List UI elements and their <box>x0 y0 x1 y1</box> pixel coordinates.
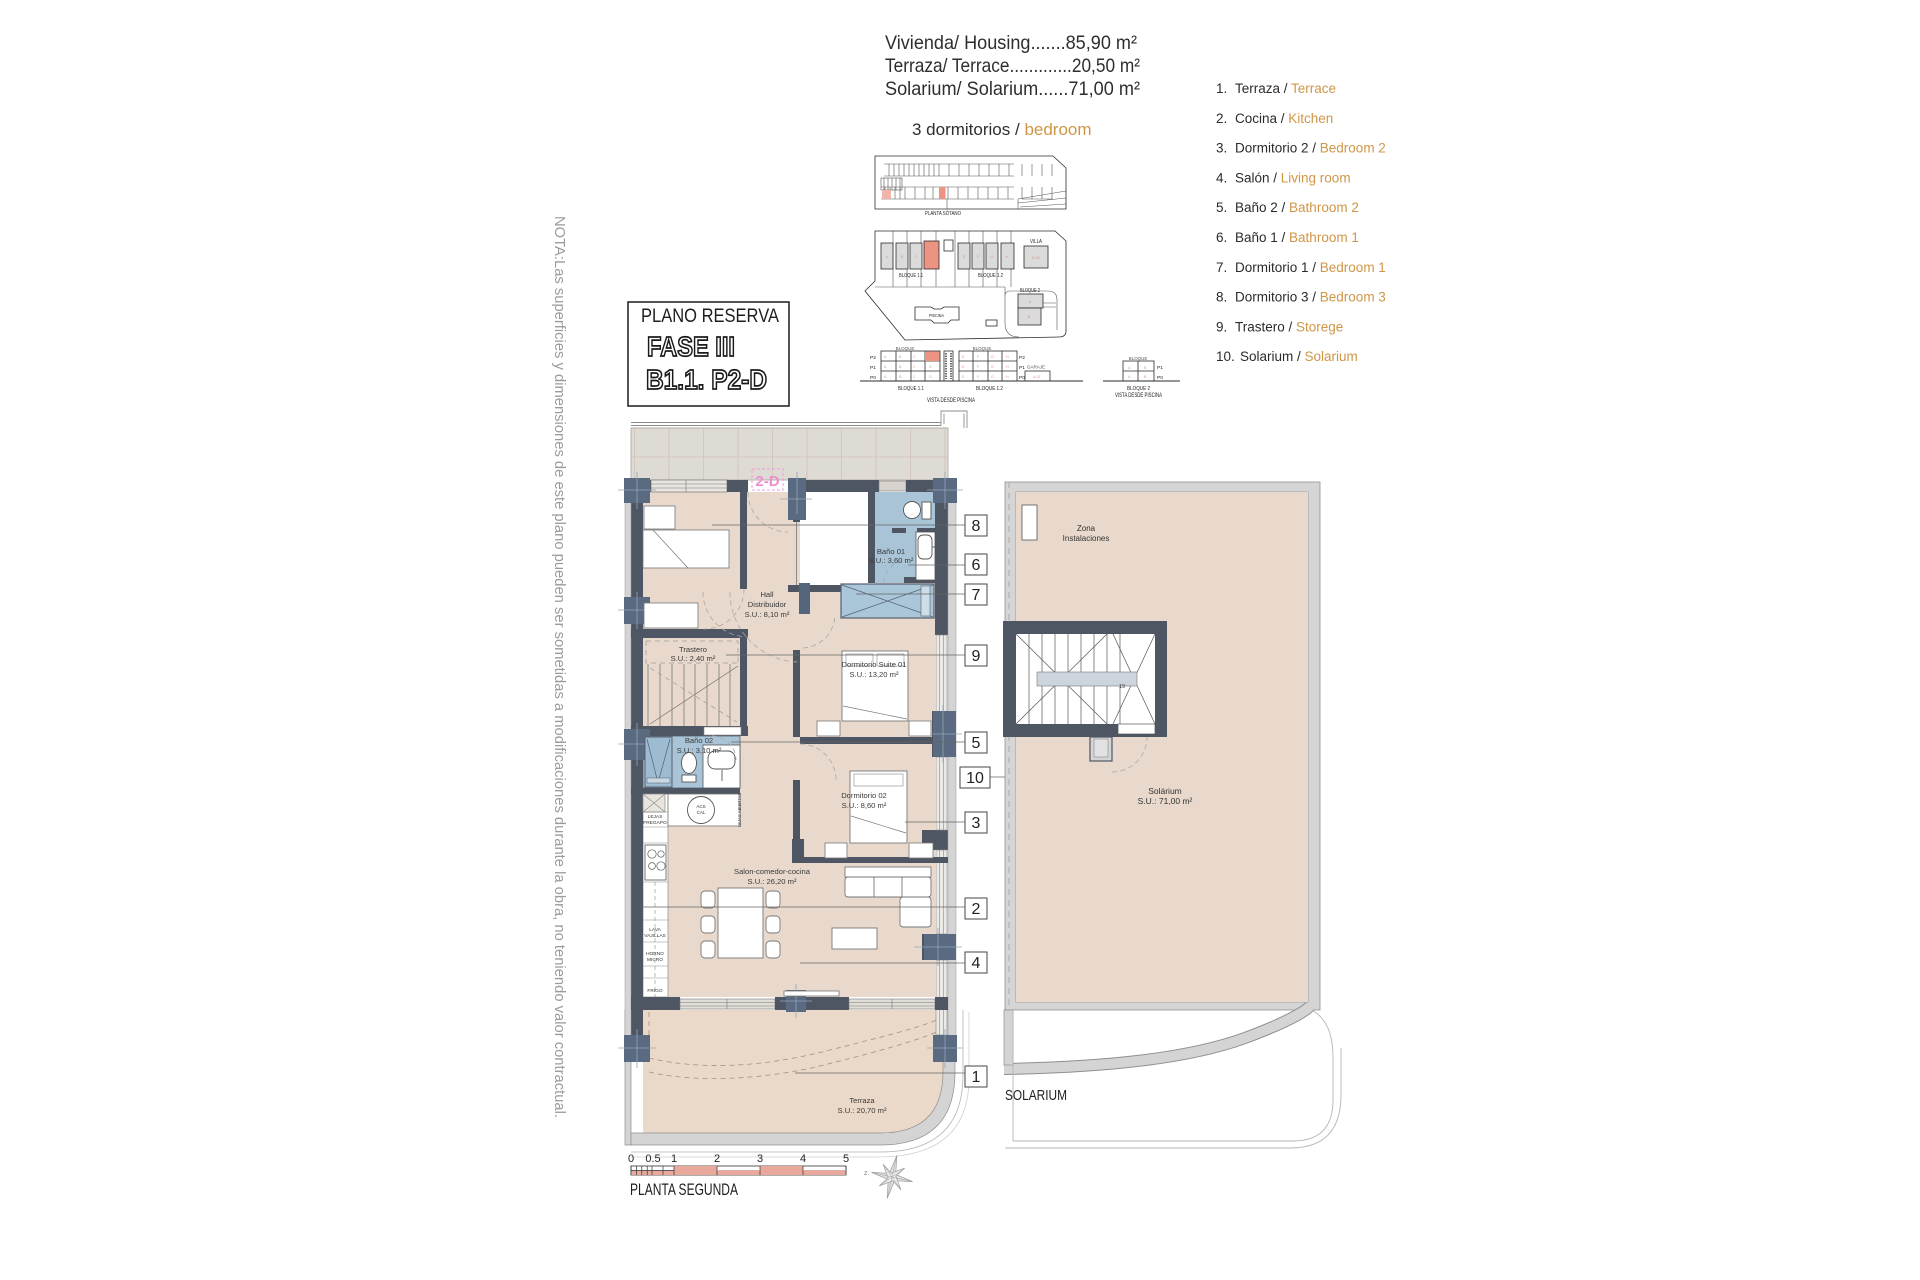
svg-text:C: C <box>913 355 916 359</box>
svg-text:6.: 6. <box>1216 230 1227 245</box>
svg-text:4.: 4. <box>1216 170 1227 185</box>
svg-text:Salon-comedor-cocina: Salon-comedor-cocina <box>734 867 811 876</box>
svg-text:G: G <box>991 355 994 359</box>
svg-text:Solárium: Solárium <box>1148 786 1182 796</box>
svg-text:PISCINA: PISCINA <box>929 313 944 318</box>
svg-text:Solarium/ Solarium......71,00: Solarium/ Solarium......71,00 m² <box>885 78 1140 100</box>
svg-text:2.: 2. <box>1216 111 1227 126</box>
svg-text:VILLA: VILLA <box>1030 239 1043 245</box>
svg-text:H: H <box>1006 355 1009 359</box>
svg-text:G: G <box>990 254 993 259</box>
svg-text:H: H <box>1006 375 1009 379</box>
svg-text:E: E <box>963 254 966 259</box>
svg-text:P2: P2 <box>1019 355 1025 361</box>
svg-text:3 dormitorios / bedroom: 3 dormitorios / bedroom <box>912 120 1092 139</box>
svg-text:BLOQUE 1.1: BLOQUE 1.1 <box>899 273 923 279</box>
svg-text:Dormitorio Suite 01: Dormitorio Suite 01 <box>842 660 907 669</box>
svg-text:VISTA DESDE PISCINA: VISTA DESDE PISCINA <box>927 398 975 404</box>
svg-text:A-01: A-01 <box>1033 375 1041 379</box>
svg-text:Cocina / Kitchen: Cocina / Kitchen <box>1235 111 1333 126</box>
svg-text:1: 1 <box>671 1153 677 1165</box>
svg-text:Baño 01: Baño 01 <box>877 547 905 556</box>
svg-text:S.U.: 71,00 m²: S.U.: 71,00 m² <box>1138 796 1193 806</box>
svg-text:Trastero / Storege: Trastero / Storege <box>1235 319 1343 334</box>
svg-text:Baño 1 / Bathroom 1: Baño 1 / Bathroom 1 <box>1235 230 1359 245</box>
svg-text:3.: 3. <box>1216 141 1227 156</box>
svg-text:9: 9 <box>972 648 981 665</box>
svg-text:B1.1. P2-D: B1.1. P2-D <box>646 364 767 395</box>
svg-text:10: 10 <box>966 770 984 787</box>
svg-text:2: 2 <box>972 901 981 918</box>
svg-text:FREGAPO: FREGAPO <box>643 820 667 826</box>
svg-text:4: 4 <box>972 955 981 972</box>
svg-text:z.: z. <box>864 1170 870 1177</box>
svg-text:0.5: 0.5 <box>645 1153 660 1165</box>
svg-text:Baño 02: Baño 02 <box>685 736 713 745</box>
svg-text:Instalaciones: Instalaciones <box>1063 534 1110 543</box>
svg-text:D: D <box>929 375 932 379</box>
svg-text:5: 5 <box>843 1153 849 1165</box>
svg-text:Terraza: Terraza <box>849 1096 875 1105</box>
svg-text:S.U.: 20,70 m²: S.U.: 20,70 m² <box>838 1106 887 1115</box>
svg-text:G: G <box>991 375 994 379</box>
svg-text:P0: P0 <box>1019 375 1025 381</box>
svg-text:Dormitorio 2 / Bedroom 2: Dormitorio 2 / Bedroom 2 <box>1235 141 1386 156</box>
svg-text:Baño 2 / Bathroom 2: Baño 2 / Bathroom 2 <box>1235 200 1359 215</box>
svg-text:BLOQUE: BLOQUE <box>973 346 992 351</box>
svg-text:Terraza / Terrace: Terraza / Terrace <box>1235 81 1336 96</box>
svg-text:8.: 8. <box>1216 290 1227 305</box>
svg-text:Zona: Zona <box>1077 524 1096 533</box>
svg-text:LEJAS: LEJAS <box>648 814 663 820</box>
svg-text:S.U.: 8,10 m²: S.U.: 8,10 m² <box>745 610 790 619</box>
svg-text:P0: P0 <box>870 375 876 381</box>
svg-text:H: H <box>1006 254 1009 259</box>
svg-text:S.U.: 2,40 m²: S.U.: 2,40 m² <box>671 654 716 663</box>
svg-text:3: 3 <box>972 815 981 832</box>
svg-text:Dormitorio 02: Dormitorio 02 <box>841 791 887 800</box>
svg-text:GARAJE: GARAJE <box>1027 365 1045 370</box>
svg-text:Vivienda/ Housing.......85,90: Vivienda/ Housing.......85,90 m² <box>885 32 1137 54</box>
svg-text:G: G <box>991 365 994 369</box>
svg-text:P2: P2 <box>870 355 876 361</box>
svg-text:10.: 10. <box>1216 349 1235 364</box>
svg-text:P1: P1 <box>1157 365 1163 371</box>
svg-text:S.U.: 3,10 m²: S.U.: 3,10 m² <box>677 746 722 755</box>
svg-text:D: D <box>929 365 932 369</box>
svg-text:LAVA: LAVA <box>649 927 661 933</box>
svg-text:LEJAS ABIERTAS: LEJAS ABIERTAS <box>737 793 742 827</box>
svg-text:ACS: ACS <box>696 804 705 809</box>
svg-text:5: 5 <box>972 735 981 752</box>
svg-text:S.U.: 3,60 m²: S.U.: 3,60 m² <box>869 556 914 565</box>
svg-text:9.: 9. <box>1216 319 1227 334</box>
svg-text:6: 6 <box>972 557 981 574</box>
svg-text:C: C <box>915 254 918 259</box>
svg-text:8: 8 <box>972 518 981 535</box>
svg-text:Hall: Hall <box>760 590 773 599</box>
svg-text:Terraza/ Terrace.............2: Terraza/ Terrace.............20,50 m² <box>885 55 1140 77</box>
svg-text:Trastero: Trastero <box>679 645 707 654</box>
svg-text:1: 1 <box>972 1069 981 1086</box>
svg-text:A: A <box>886 254 889 259</box>
svg-text:A-01: A-01 <box>1032 255 1041 260</box>
svg-text:P1: P1 <box>1019 365 1025 371</box>
svg-text:3: 3 <box>757 1153 763 1165</box>
svg-text:Salón / Living room: Salón / Living room <box>1235 170 1351 185</box>
svg-text:2-D: 2-D <box>755 473 779 490</box>
svg-text:S.U.: 8,60 m²: S.U.: 8,60 m² <box>842 801 887 810</box>
svg-text:BLOQUE 2: BLOQUE 2 <box>1020 288 1040 294</box>
svg-text:B: B <box>901 254 904 259</box>
svg-text:BLOQUE: BLOQUE <box>896 346 915 351</box>
svg-text:7.: 7. <box>1216 260 1227 275</box>
svg-text:C: C <box>913 365 916 369</box>
svg-text:19: 19 <box>1119 684 1125 690</box>
svg-text:BLOQUE 1.1: BLOQUE 1.1 <box>898 386 924 392</box>
svg-text:Dormitorio 1 / Bedroom 1: Dormitorio 1 / Bedroom 1 <box>1235 260 1386 275</box>
svg-text:NOTA:Las superficies y dimensi: NOTA:Las superficies y dimensiones de es… <box>551 216 567 1118</box>
svg-text:2: 2 <box>714 1153 720 1165</box>
svg-text:PLANTA SEGUNDA: PLANTA SEGUNDA <box>630 1180 738 1199</box>
svg-text:0: 0 <box>628 1153 634 1165</box>
svg-text:CAL: CAL <box>697 810 706 815</box>
svg-text:S.U.: 26,20 m²: S.U.: 26,20 m² <box>748 877 797 886</box>
svg-text:P0: P0 <box>1157 375 1163 381</box>
svg-text:BLOQUE 1.2: BLOQUE 1.2 <box>976 386 1003 392</box>
svg-text:5.: 5. <box>1216 200 1227 215</box>
svg-text:1.: 1. <box>1216 81 1227 96</box>
svg-text:BLOQUE 1.2: BLOQUE 1.2 <box>978 273 1003 279</box>
svg-text:FASE III: FASE III <box>647 331 735 362</box>
svg-text:SOLARIUM: SOLARIUM <box>1005 1087 1067 1104</box>
svg-text:Solarium / Solarium: Solarium / Solarium <box>1240 349 1358 364</box>
svg-text:P1: P1 <box>870 365 876 371</box>
svg-text:B: B <box>1028 314 1031 319</box>
svg-text:Distribuidor: Distribuidor <box>748 600 787 609</box>
svg-text:S.U.: 13,20 m²: S.U.: 13,20 m² <box>850 670 899 679</box>
svg-text:VISTA DESDE PISCINA: VISTA DESDE PISCINA <box>1115 393 1162 399</box>
svg-text:A: A <box>1029 299 1032 304</box>
svg-text:Dormitorio 3 / Bedroom 3: Dormitorio 3 / Bedroom 3 <box>1235 290 1386 305</box>
svg-text:BLOQUE 2: BLOQUE 2 <box>1127 386 1150 392</box>
svg-text:PLANO RESERVA: PLANO RESERVA <box>641 306 779 327</box>
svg-text:7: 7 <box>972 587 981 604</box>
svg-text:4: 4 <box>800 1153 806 1165</box>
svg-text:C: C <box>913 375 916 379</box>
svg-text:H: H <box>1006 365 1009 369</box>
svg-text:PLANTA SÓTANO: PLANTA SÓTANO <box>925 210 962 217</box>
svg-text:BLOQUE: BLOQUE <box>1129 356 1148 361</box>
